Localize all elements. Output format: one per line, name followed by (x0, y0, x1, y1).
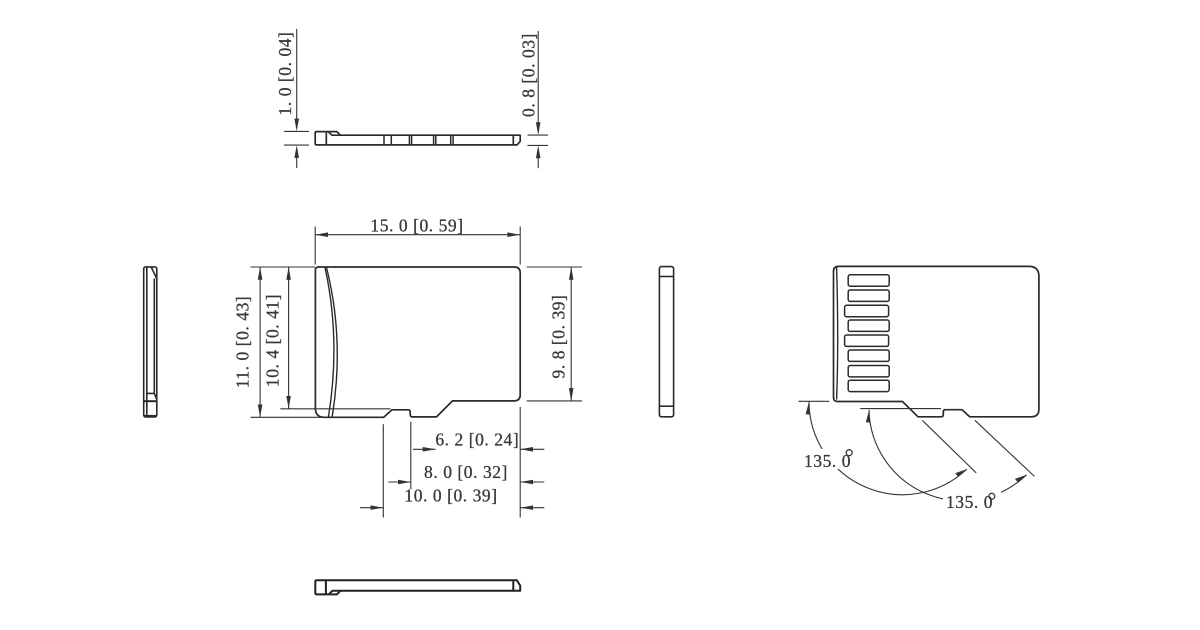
svg-text:10. 4 [0. 41]: 10. 4 [0. 41] (262, 294, 282, 387)
svg-text:10. 0 [0. 39]: 10. 0 [0. 39] (404, 485, 497, 505)
svg-text:8. 0 [0. 32]: 8. 0 [0. 32] (424, 462, 508, 482)
svg-text:135. 0: 135. 0 (946, 492, 993, 512)
svg-text:135. 0: 135. 0 (804, 451, 851, 471)
svg-text:9. 8 [0. 39]: 9. 8 [0. 39] (548, 295, 568, 379)
svg-text:1. 0 [0. 04]: 1. 0 [0. 04] (275, 32, 295, 116)
svg-text:15. 0 [0. 59]: 15. 0 [0. 59] (370, 216, 463, 236)
svg-text:11. 0 [0. 43]: 11. 0 [0. 43] (233, 296, 253, 389)
svg-text:0. 8 [0. 03]: 0. 8 [0. 03] (518, 33, 538, 117)
svg-text:6. 2 [0. 24]: 6. 2 [0. 24] (435, 429, 519, 449)
